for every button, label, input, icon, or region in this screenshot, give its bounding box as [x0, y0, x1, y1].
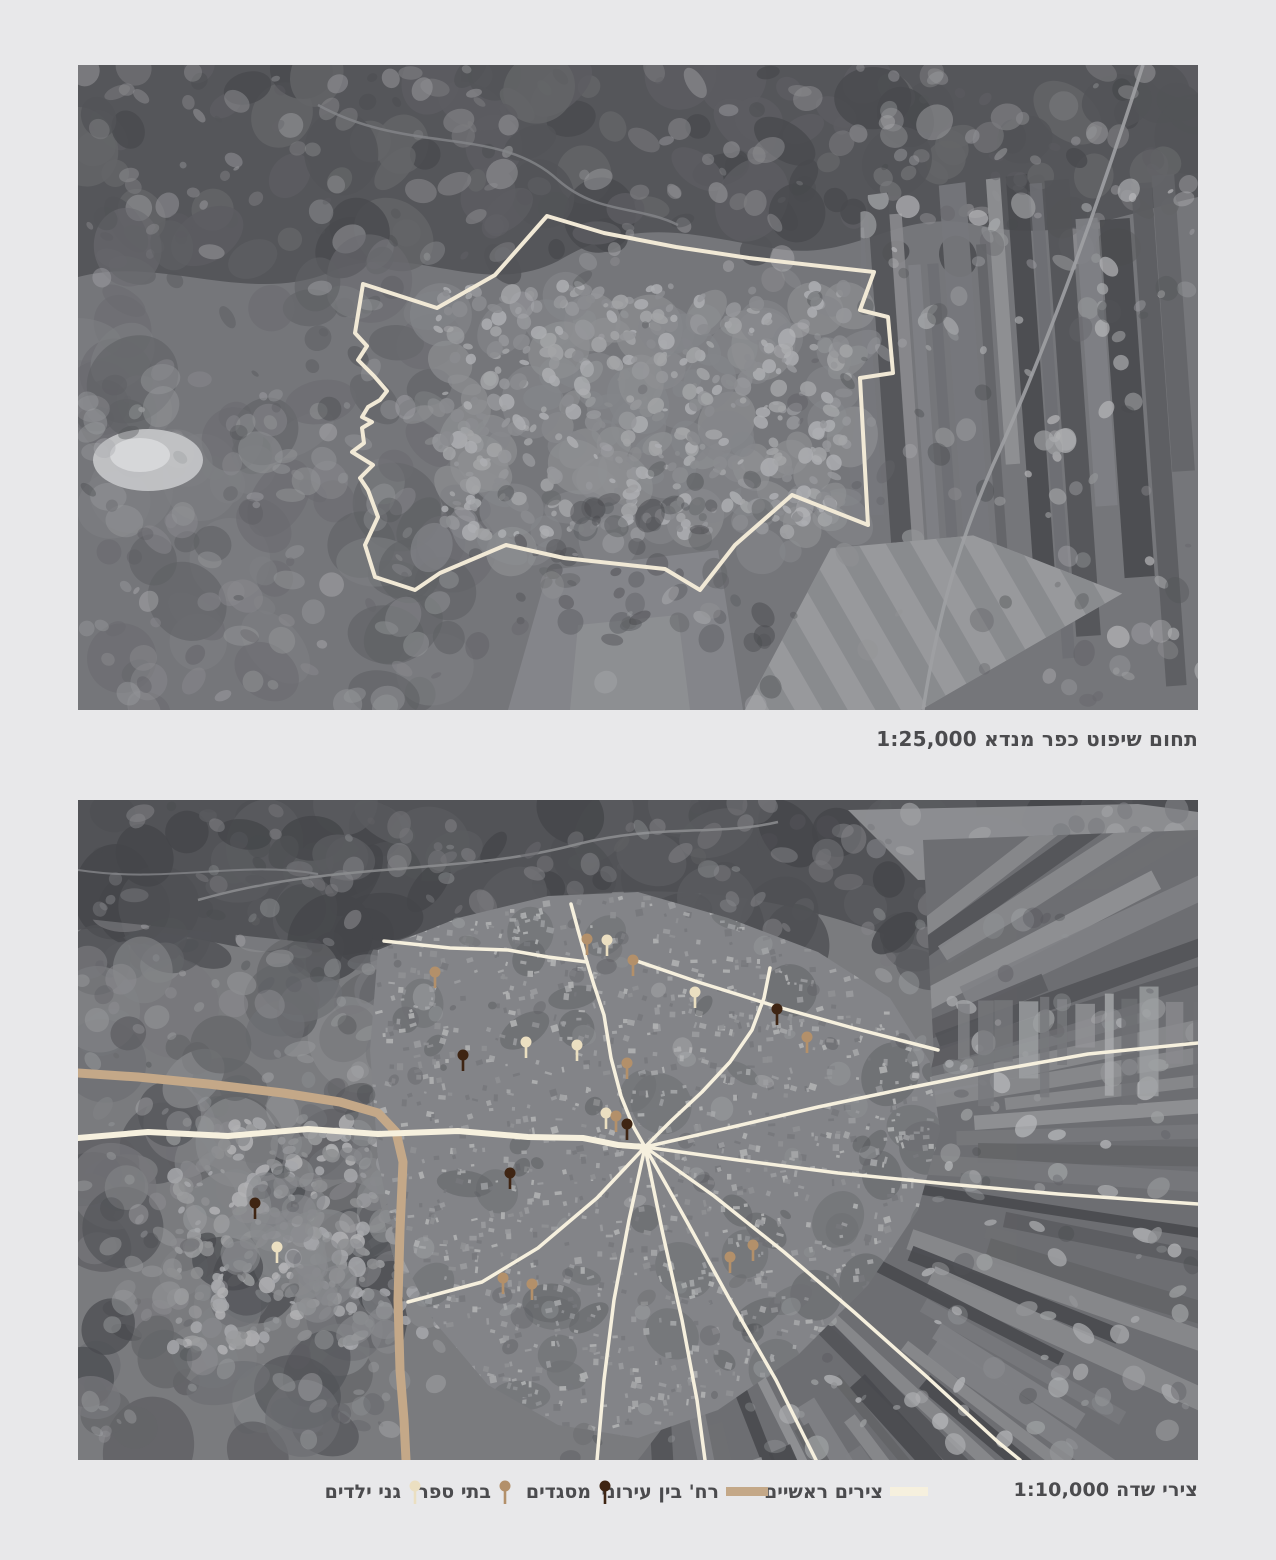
legend-item-main-roads: צירים ראשיים	[764, 1479, 928, 1502]
town-roads-map	[78, 800, 1198, 1460]
kindergartens-pin-icon	[408, 1479, 422, 1506]
town-roads-map-image	[78, 800, 1198, 1460]
legend-item-intercity-road: רח' בין עירוני	[601, 1479, 768, 1502]
legend-label: מסגדים	[526, 1482, 591, 1502]
legend-item-schools: בתי ספר	[417, 1479, 512, 1506]
legend-item-mosques: מסגדים	[526, 1479, 612, 1506]
jurisdiction-map	[78, 65, 1198, 710]
mosques-pin-icon	[598, 1479, 612, 1506]
jurisdiction-map-image	[78, 65, 1198, 710]
main-roads-swatch-icon	[890, 1487, 928, 1496]
legend-label: בתי ספר	[417, 1482, 491, 1502]
map2-scale-caption: צירי שדה 1:10,000	[1014, 1479, 1198, 1501]
legend-label: רח' בין עירוני	[601, 1482, 719, 1502]
page: תחום שיפוט כפר מנדא 1:25,000 צירי שדה 1:…	[0, 0, 1276, 1560]
legend-label: גני ילדים	[325, 1482, 401, 1502]
intercity-road-swatch-icon	[726, 1487, 768, 1496]
schools-pin-icon	[498, 1479, 512, 1506]
legend-label: צירים ראשיים	[764, 1482, 883, 1502]
map1-caption: תחום שיפוט כפר מנדא 1:25,000	[876, 727, 1198, 751]
legend-item-kindergartens: גני ילדים	[325, 1479, 422, 1506]
